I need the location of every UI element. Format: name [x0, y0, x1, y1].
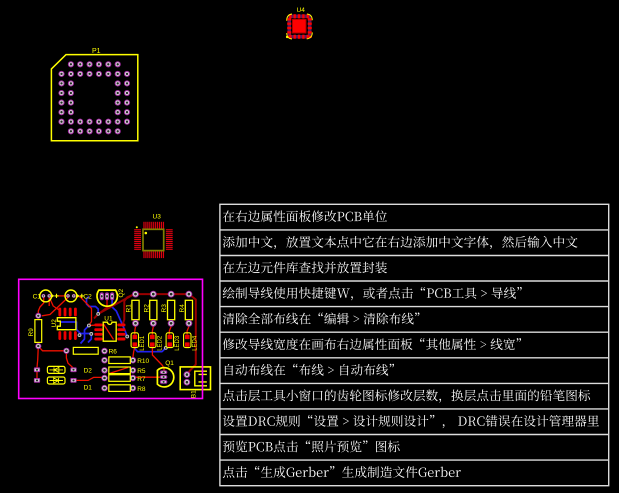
svg-text:LED3: LED3	[175, 335, 181, 351]
svg-text:R1: R1	[126, 304, 133, 313]
svg-text:U2: U2	[51, 319, 58, 328]
svg-text:R9: R9	[28, 328, 35, 337]
svg-text:R6: R6	[109, 348, 118, 355]
svg-text:U3: U3	[153, 214, 162, 221]
svg-text:R10: R10	[137, 358, 149, 365]
svg-text:Q1: Q1	[165, 360, 174, 367]
svg-text:Q2: Q2	[118, 288, 125, 297]
svg-text:B1: B1	[191, 390, 198, 398]
svg-text:LED2: LED2	[158, 335, 164, 351]
svg-text:P1: P1	[92, 48, 101, 55]
svg-text:D1: D1	[84, 384, 93, 391]
svg-text:R5: R5	[137, 368, 146, 375]
svg-text:LED1: LED1	[140, 335, 146, 351]
svg-text:LED4: LED4	[193, 335, 199, 351]
svg-text:C1: C1	[33, 294, 42, 301]
svg-text:R3: R3	[161, 304, 168, 313]
svg-text:R4: R4	[179, 304, 186, 313]
svg-text:R2: R2	[143, 304, 150, 313]
svg-text:R7: R7	[137, 376, 146, 383]
svg-text:C2: C2	[83, 294, 92, 301]
svg-text:U4: U4	[297, 7, 306, 14]
svg-text:R8: R8	[137, 386, 146, 393]
svg-text:U1: U1	[104, 315, 113, 322]
svg-text:D2: D2	[84, 368, 93, 375]
